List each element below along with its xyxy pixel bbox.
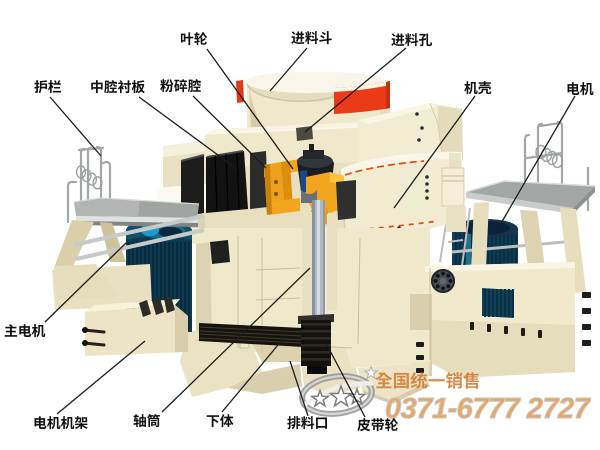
svg-text:0371-6777 2727: 0371-6777 2727 xyxy=(385,393,592,425)
